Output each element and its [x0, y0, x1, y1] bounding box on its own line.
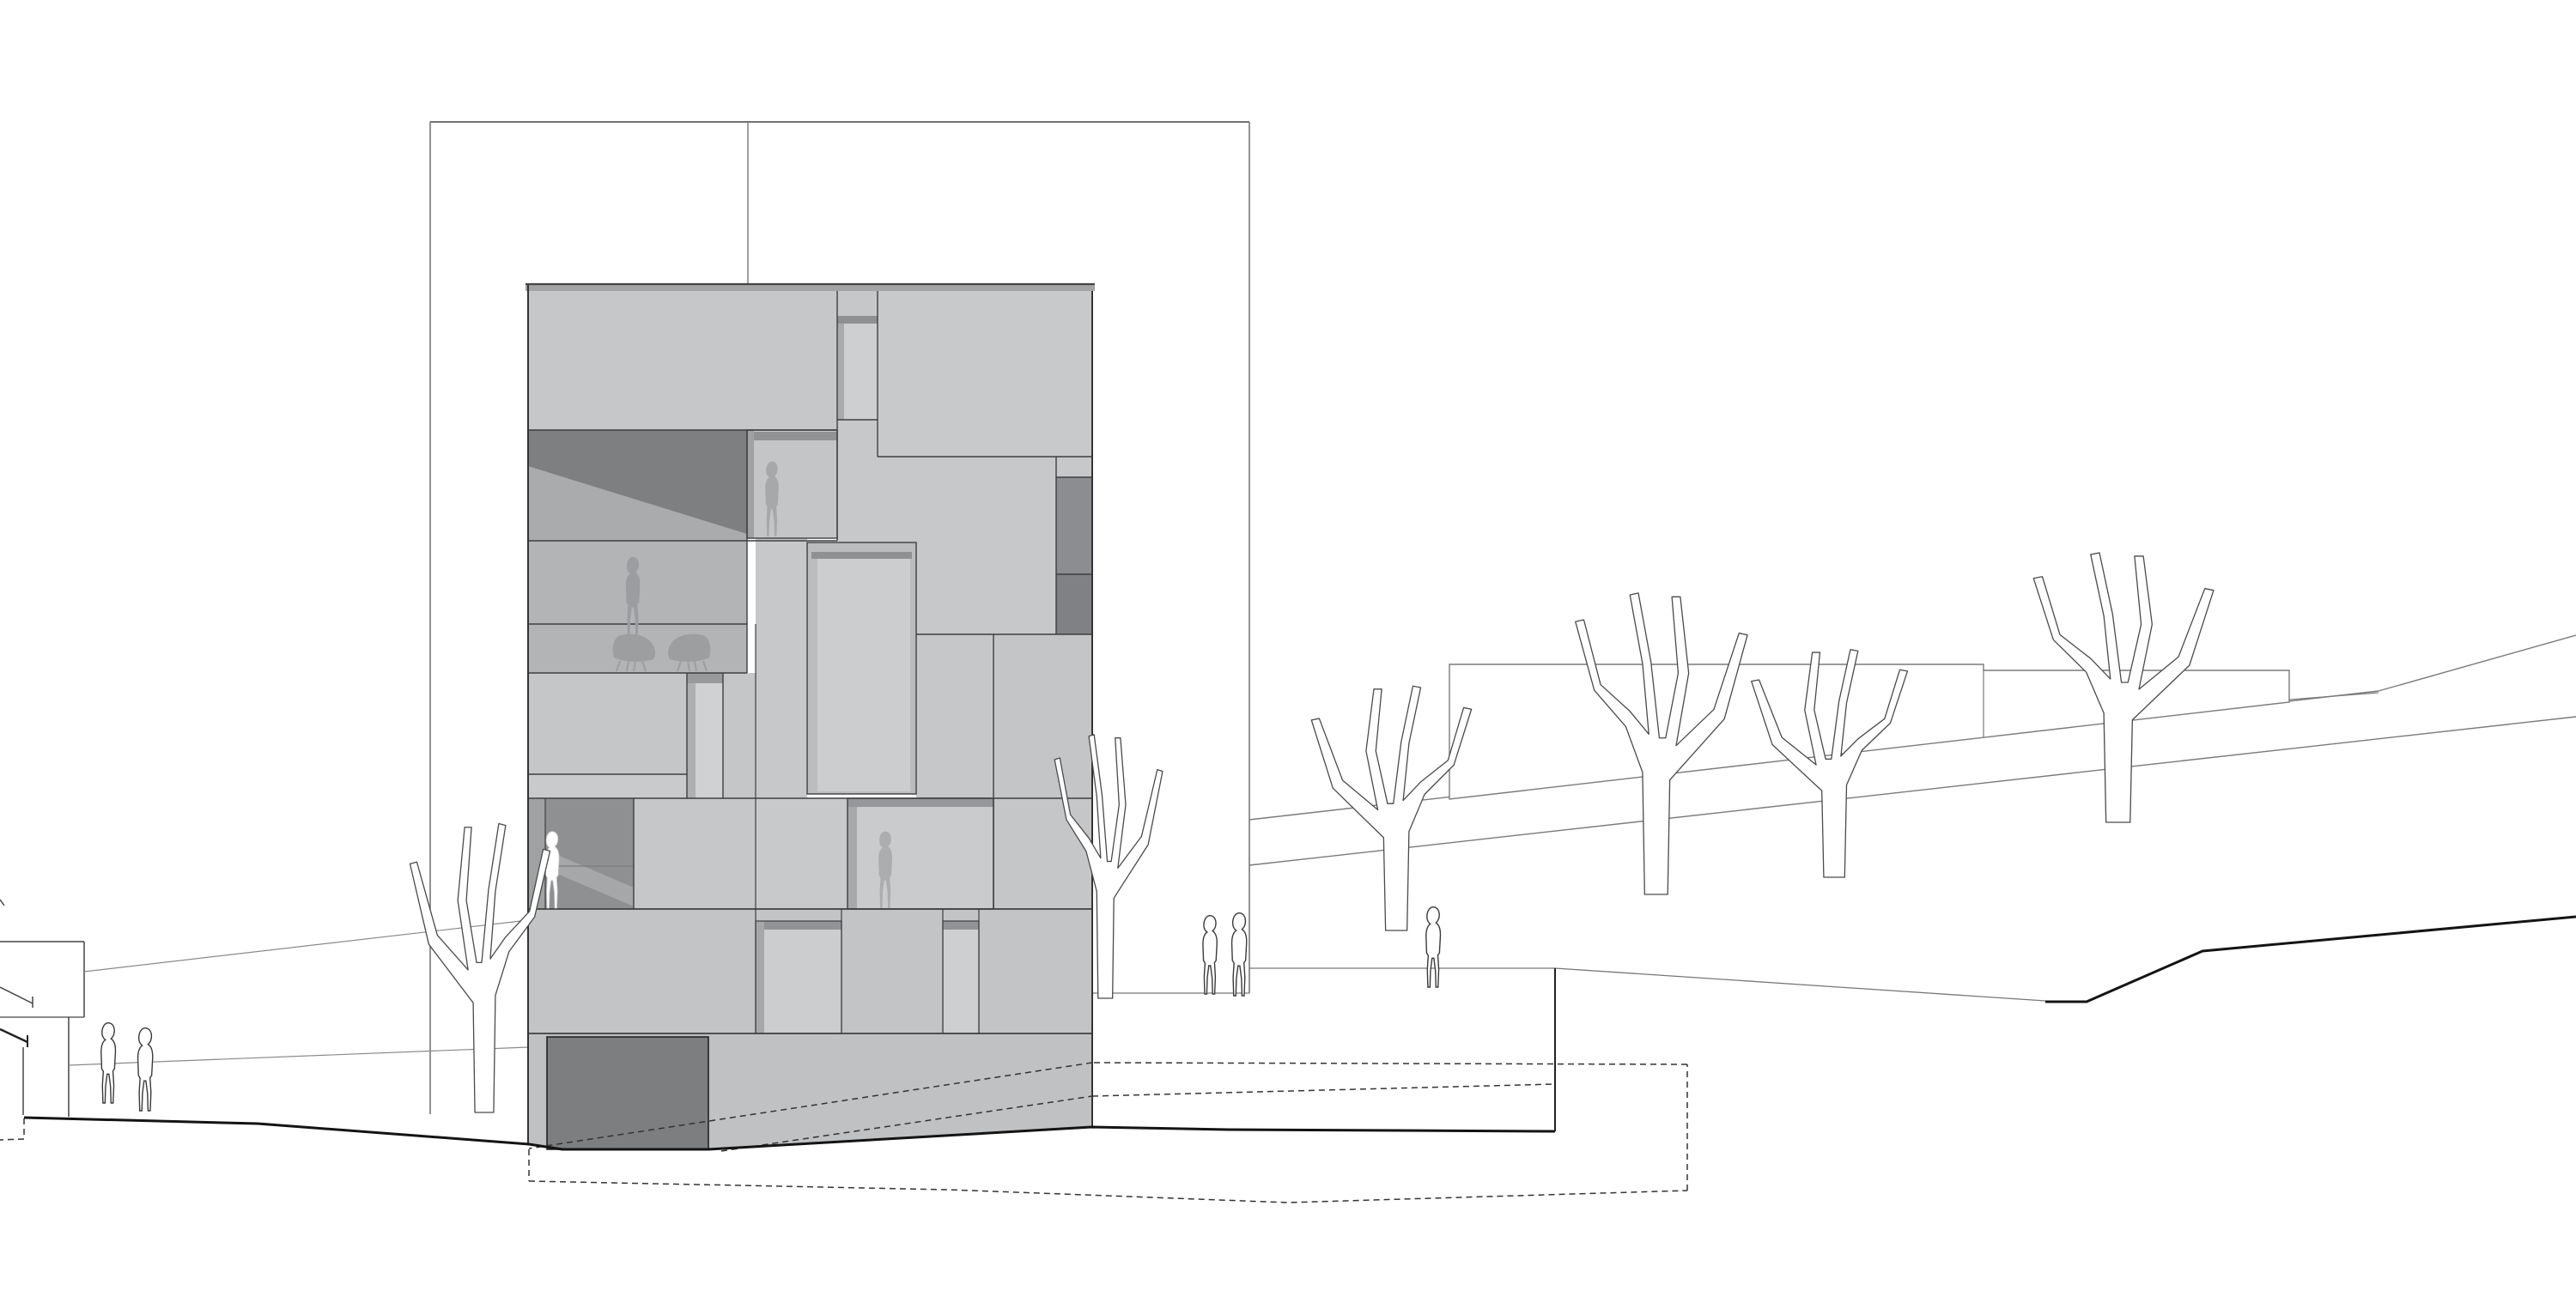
pedestrian-plaza-2: [1232, 913, 1247, 996]
facade-right-cap: [1056, 457, 1092, 477]
central-window-lintel: [811, 552, 912, 559]
facade-slot-a2-interior: [844, 324, 878, 420]
pedestrian-left-2: [138, 1028, 153, 1111]
slot-b2-lintel: [749, 432, 837, 440]
opening-right-lintel: [848, 798, 993, 807]
background-building-step: [2289, 693, 2379, 700]
facade-panel-d1: [528, 673, 687, 774]
pedestrian-plaza-1: [1203, 916, 1217, 994]
slot-d-jamb: [687, 683, 696, 798]
terrain-section-right: [2045, 917, 2576, 1002]
facade-panel-d2: [723, 673, 756, 798]
garage-door: [547, 1037, 708, 1149]
window-e1-lintel: [758, 921, 841, 930]
window-e1-jamb: [756, 921, 764, 1033]
pedestrian-plaza-3: [1426, 907, 1441, 987]
slot-b2-interior: [747, 430, 837, 538]
central-window-inner: [817, 559, 910, 791]
opening-right-jamb: [848, 807, 857, 909]
facade-roof-bar: [526, 284, 1095, 291]
facade-panel-f1: [634, 798, 756, 909]
facade-panel-e2: [993, 634, 1092, 798]
kiosk-roof-stub: [0, 900, 4, 906]
facade-panel-d1-sill: [528, 774, 687, 798]
facade-panel-mid: [756, 538, 807, 798]
kiosk-dash-horizontal: [0, 1139, 24, 1140]
underground-dash-top: [1092, 1063, 1687, 1064]
slot-b2-jamb: [747, 430, 754, 538]
facade-panel-e1: [916, 634, 993, 798]
facade-slot-a2-jamb: [837, 324, 844, 420]
underground-dash-bottom: [529, 1181, 1687, 1203]
window-e2-interior: [943, 930, 979, 1033]
facade-right-dark-lower: [1056, 574, 1092, 634]
facade-slot-a2-lintel: [837, 316, 878, 324]
facade-right-dark-upper: [1056, 477, 1092, 574]
facade-panel-top-right: [878, 291, 1092, 457]
opening-right-interior: [848, 798, 993, 909]
elevation-svg: [0, 0, 2576, 1309]
pedestrian-left-1: [101, 1023, 116, 1103]
slot-d-lintel: [687, 673, 723, 683]
kiosk-canopy-upper: [0, 987, 33, 1003]
underground-dash-mid-right: [1092, 1084, 1555, 1096]
window-e1-interior: [764, 930, 841, 1033]
kiosk-canopy-lower: [0, 1029, 27, 1042]
facade-slot-a2-cap: [837, 291, 878, 316]
architectural-elevation-drawing: [0, 0, 2576, 1309]
right-plaza-ground-far: [1555, 968, 2045, 1001]
window-e2-lintel: [943, 921, 979, 930]
tree-right-1: [1311, 686, 1471, 930]
facade-panel-f3: [993, 798, 1092, 909]
facade-panel-top-left: [528, 291, 837, 430]
facade-panel-f2: [756, 798, 848, 909]
